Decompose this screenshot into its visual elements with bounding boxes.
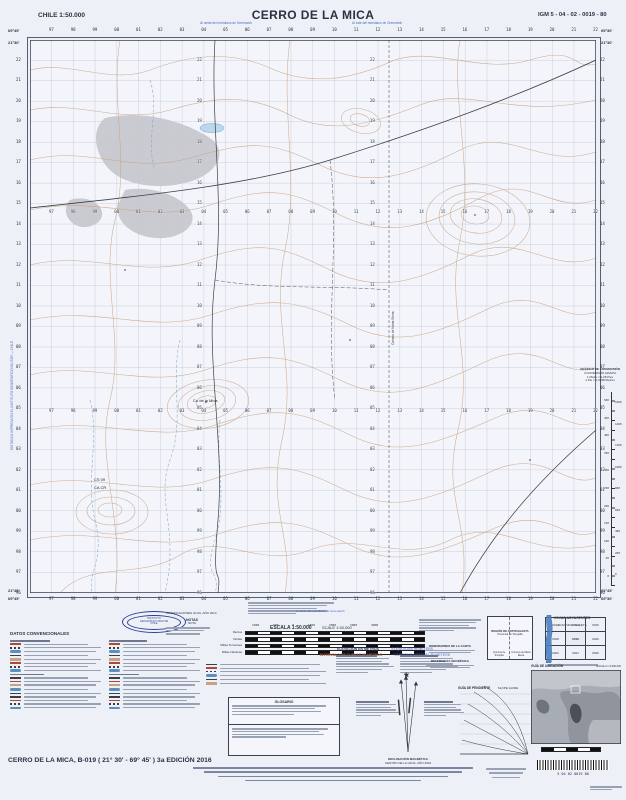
text-line — [123, 677, 188, 678]
legend-symbol — [109, 677, 120, 679]
glosario-title: GLOSARIO — [232, 700, 336, 705]
text-line — [123, 666, 188, 667]
legend-symbol — [10, 669, 21, 672]
scale-meridian-note: Al oeste del meridiano de Greenwich — [265, 610, 375, 614]
legend-symbol — [109, 681, 120, 683]
legend-subheader — [10, 640, 50, 641]
text-line — [336, 672, 368, 673]
grid-rows-interior-1: 22 21 20 19 18 17 16 15 14 13 12 11 10 0… — [197, 50, 205, 603]
legend-symbol — [206, 667, 217, 669]
legend-symbol — [109, 658, 120, 660]
grid-columns-interior-1: 97 98 99 00 01 02 03 04 05 06 07 08 09 1… — [30, 209, 615, 214]
scale-unit-label: Yardas — [210, 638, 242, 642]
print-note — [590, 785, 622, 792]
text-line — [123, 681, 201, 682]
legend-symbol — [109, 662, 120, 664]
legend-symbol — [10, 643, 21, 645]
text-line — [245, 780, 421, 781]
text-line — [24, 663, 97, 664]
text-line — [220, 679, 310, 680]
corner-br-lat: 21°45' — [601, 588, 612, 593]
legend-symbol — [10, 647, 21, 649]
text-line — [24, 644, 89, 645]
text-line — [24, 684, 97, 685]
text-line — [400, 655, 438, 656]
datos-convencionales: DATOS CONVENCIONALES — [10, 631, 200, 711]
legend-symbol — [109, 703, 120, 705]
legend-symbol — [109, 655, 120, 657]
text-line — [492, 777, 520, 778]
corner-tl-lat: 21°30' — [8, 40, 19, 45]
corner-bl-lat: 21°45' — [8, 588, 19, 593]
hojas-cell: 0024 — [566, 646, 586, 660]
legend-symbol — [109, 684, 120, 686]
legend-symbol — [206, 682, 217, 684]
legend-symbol — [10, 703, 21, 705]
text-line — [232, 734, 324, 735]
grid-columns-interior-2: 97 98 99 00 01 02 03 04 05 06 07 08 09 1… — [30, 408, 615, 413]
text-line — [336, 655, 377, 656]
hojas-cell: 0014 — [566, 618, 586, 632]
limites-provincia: Provincia de Tocopilla — [488, 633, 532, 636]
legend-column-1 — [10, 639, 101, 711]
legend-symbol — [10, 700, 21, 702]
legend-subheader — [109, 640, 147, 641]
glosario-box: GLOSARIO — [228, 697, 340, 726]
hojas-cell: 0020 — [586, 632, 606, 646]
nota-subtitle: NOTA — [166, 622, 218, 626]
map-sheet-scan: { "header": { "country_scale": "CHILE 1:… — [0, 0, 626, 800]
text-line — [204, 771, 462, 772]
corner-bl-lon: 69°45' — [8, 596, 19, 601]
legend-symbol — [109, 666, 120, 668]
text-line — [24, 696, 97, 697]
text-line — [419, 622, 476, 623]
text-line — [419, 627, 476, 628]
margin-credit-note: EDITADA E IMPRESA EN EL INSTITUTO GEOGRÁ… — [10, 300, 14, 450]
scale-unit-label: Metros — [210, 631, 242, 635]
text-line — [232, 711, 321, 712]
scale-unit-label: Millas Náuticas — [210, 651, 242, 655]
projection-block — [419, 618, 481, 633]
conversion-note-2: 1 Pie = 0,3048 Metros — [576, 379, 624, 383]
legend-symbol — [10, 666, 21, 668]
text-line — [24, 655, 89, 656]
meridian-note-left: Al oeste del meridiano de Greenwich — [200, 21, 252, 25]
legend-symbol — [109, 700, 120, 702]
text-line — [336, 658, 389, 659]
map-label-ca: CA CR — [94, 485, 106, 490]
corner-tr-lon: 69°30' — [601, 28, 612, 33]
legend-symbol — [109, 707, 120, 710]
text-line — [336, 663, 389, 664]
legend-symbol — [10, 658, 21, 660]
text-line — [419, 619, 481, 620]
text-line — [24, 707, 97, 708]
text-line — [123, 655, 188, 656]
grid-rows-left: 22 21 20 19 18 17 16 15 14 13 12 11 10 0… — [16, 50, 24, 603]
declination-caption-2: CENTRO DE LA HOJA, AÑO 2016 — [372, 762, 444, 766]
legend-symbol — [10, 662, 21, 664]
legend-symbol — [10, 677, 21, 679]
text-line — [123, 659, 201, 660]
legend-symbol — [206, 679, 217, 681]
legend-symbol — [10, 650, 21, 653]
text-line — [123, 696, 196, 697]
limites-box: REGIÓN DE ANTOFAGASTA Provincia de Tocop… — [487, 616, 533, 660]
limites-divider — [509, 617, 510, 659]
limites-comuna-left: Comuna de Tocopilla — [489, 651, 509, 657]
legend-symbol — [109, 669, 120, 672]
legend-symbol — [206, 664, 217, 666]
text-line — [24, 659, 102, 660]
hojas-cell: 0025 — [586, 646, 606, 660]
ubicacion-scale: ESCALA 1:3.500.000 — [596, 665, 621, 668]
conversion-meters-scale: 500 450 400 350 300 250 200 150 100 50 0 — [601, 392, 609, 586]
text-line — [193, 767, 473, 768]
text-line — [590, 786, 622, 787]
legend-symbol — [109, 643, 120, 645]
footer-disclaimer — [188, 766, 478, 782]
text-line — [489, 772, 523, 773]
text-line — [166, 633, 200, 634]
barcode-digits: 5 04 02 0019 80 — [537, 772, 609, 776]
footer-sheet-title: CERRO DE LA MICA, B-019 ( 21° 30' - 69° … — [8, 757, 212, 764]
text-line — [123, 651, 196, 652]
text-line — [123, 707, 196, 708]
legend-symbol — [109, 696, 120, 698]
text-line — [220, 675, 321, 676]
legend-symbol — [10, 688, 21, 691]
text-line — [232, 705, 326, 706]
datos-title: DATOS CONVENCIONALES — [10, 631, 69, 637]
text-line — [232, 708, 315, 709]
corner-br-lon: 69°30' — [601, 596, 612, 601]
text-line — [123, 703, 201, 704]
text-line — [24, 681, 102, 682]
text-line — [218, 776, 448, 777]
text-line — [123, 663, 196, 664]
text-line — [123, 670, 201, 671]
text-line — [24, 670, 102, 671]
slope-guide-chart — [458, 684, 532, 760]
map-body — [30, 40, 596, 593]
dimensions-block: DIMENSIONES DE LA CARTA — [419, 645, 481, 654]
track-label: Camino de María Elena — [391, 255, 395, 345]
legend-symbol — [10, 655, 21, 657]
corner-tl-lon: 69°45' — [8, 28, 19, 33]
legend-symbol — [10, 681, 21, 683]
text-line — [336, 661, 382, 662]
legend-note-box — [228, 724, 340, 756]
legend-symbol — [109, 647, 120, 649]
text-line — [24, 703, 102, 704]
text-line — [24, 651, 97, 652]
text-line — [232, 731, 319, 732]
footer-publication-note — [482, 767, 530, 779]
text-line — [248, 605, 327, 606]
text-line — [123, 684, 196, 685]
declination-diagram — [374, 666, 442, 758]
text-line — [123, 644, 188, 645]
legend-symbol — [10, 693, 21, 695]
text-line — [166, 627, 210, 628]
text-line — [248, 602, 334, 603]
country-scale: CHILE 1:50.000 — [38, 12, 85, 19]
text-line — [123, 647, 201, 648]
text-line — [429, 652, 471, 653]
text-line — [419, 630, 454, 631]
text-line — [419, 625, 469, 626]
legend-symbol — [206, 674, 217, 677]
legend-symbol — [109, 693, 120, 695]
legend-subheader — [109, 674, 139, 675]
corner-tr-lat: 21°30' — [601, 40, 612, 45]
hojas-cell-current: 0019 — [566, 632, 586, 646]
legend-symbol — [10, 684, 21, 686]
text-line — [220, 671, 327, 672]
grid-rows-interior-2: 22 21 20 19 18 17 16 15 14 13 12 11 10 0… — [370, 50, 378, 603]
map-label-cs: CS 09 — [94, 477, 105, 482]
text-line — [590, 789, 612, 790]
scale-bar-row: Metros — [210, 631, 425, 636]
text-line — [123, 689, 188, 690]
grid-columns-top: 97 98 99 00 01 02 03 04 05 06 07 08 09 1… — [30, 27, 615, 32]
text-line — [24, 647, 102, 648]
legend-symbol — [206, 671, 217, 673]
scale-unit-label: Millas Terrestres — [210, 644, 242, 648]
conversion-graph-header: GRÁFICO DE CONVERSIÓN CONVERSION GRAPH 1… — [576, 368, 624, 383]
legend-subheader — [10, 674, 44, 675]
text-line — [425, 650, 475, 651]
text-line — [24, 677, 89, 678]
legend-symbol — [109, 688, 120, 691]
barcode — [537, 760, 609, 770]
text-line — [123, 693, 201, 694]
text-line — [232, 714, 294, 715]
text-line — [220, 664, 321, 665]
text-line — [24, 693, 102, 694]
dimensions-title: DIMENSIONES DE LA CARTA — [419, 645, 481, 649]
text-line — [220, 683, 327, 684]
text-line — [232, 728, 328, 729]
text-line — [232, 736, 286, 737]
limites-comuna-right: Comuna de María Elena — [511, 651, 531, 657]
legend-symbol — [10, 707, 21, 710]
chile-index-strip — [540, 615, 556, 663]
scale-bar — [245, 631, 426, 636]
sheet-code: IGM 5 - 04 - 02 - 0019 - 80 — [538, 12, 607, 18]
conversion-feet-scale: 1600 1400 1200 1000 800 600 400 200 0 — [615, 392, 624, 586]
text-line — [24, 700, 89, 701]
sheet-title: CERRO DE LA MICA — [213, 8, 413, 22]
scale-tick-numbers: 1000 500 0 1000 2000 3000 4000 — [252, 624, 378, 628]
ubicacion-title: GUÍA DE UBICACIÓN — [531, 664, 563, 668]
legend-column-3 — [206, 662, 326, 686]
geodetic-title: REFERENCIA GEODÉSICA — [419, 660, 481, 664]
ubicacion-map — [531, 670, 621, 744]
ubicacion-header: GUÍA DE UBICACIÓN ESCALA 1:3.500.000 — [531, 664, 621, 668]
text-line — [220, 668, 310, 669]
legend-column-2 — [109, 639, 200, 711]
meridian-note-right: Al este del meridiano de Greenwich — [352, 21, 402, 25]
legend-symbol — [10, 696, 21, 698]
ubicacion-scalebar — [541, 747, 601, 752]
text-line — [24, 666, 89, 667]
text-line — [123, 700, 188, 701]
modifications-note: MODIFICACIONES HOJA, AÑO 2014 — [166, 612, 218, 616]
text-line — [486, 768, 526, 769]
hojas-cell: 0015 — [586, 618, 606, 632]
text-line — [24, 689, 89, 690]
legend-symbol — [109, 650, 120, 653]
